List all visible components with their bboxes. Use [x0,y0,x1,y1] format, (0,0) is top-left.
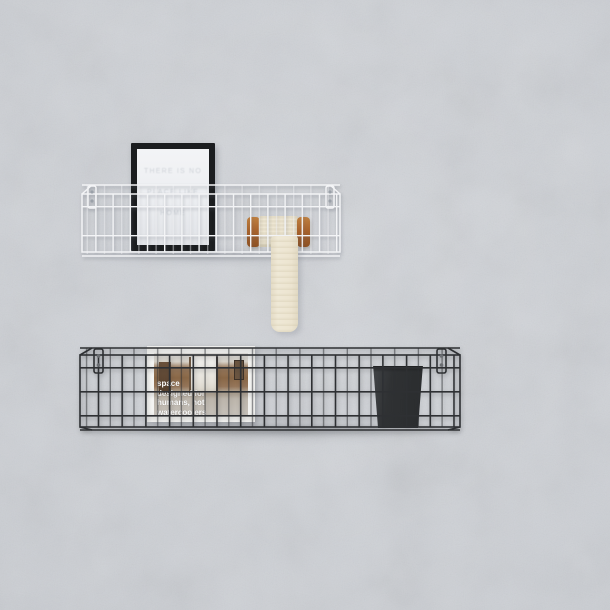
screw-icon [97,363,101,367]
screw-icon [90,190,93,193]
wall-texture [0,0,610,610]
screw-icon [440,354,444,358]
screw-icon [328,199,331,202]
screw-icon [328,190,331,193]
frame-faint-text-line: THERE IS NO [144,167,202,177]
white-wire-basket [78,177,344,259]
hanging-lace-ribbon [271,236,298,332]
black-basket-wires [80,348,460,430]
black-wire-basket [74,343,466,433]
screw-icon [90,199,93,202]
screw-icon [440,363,444,367]
black-basket-front-grid [80,355,460,427]
white-basket-wires [82,185,340,256]
screw-icon [97,354,101,358]
wall-grain-layer [0,0,610,610]
white-basket-front-grid [82,194,340,252]
